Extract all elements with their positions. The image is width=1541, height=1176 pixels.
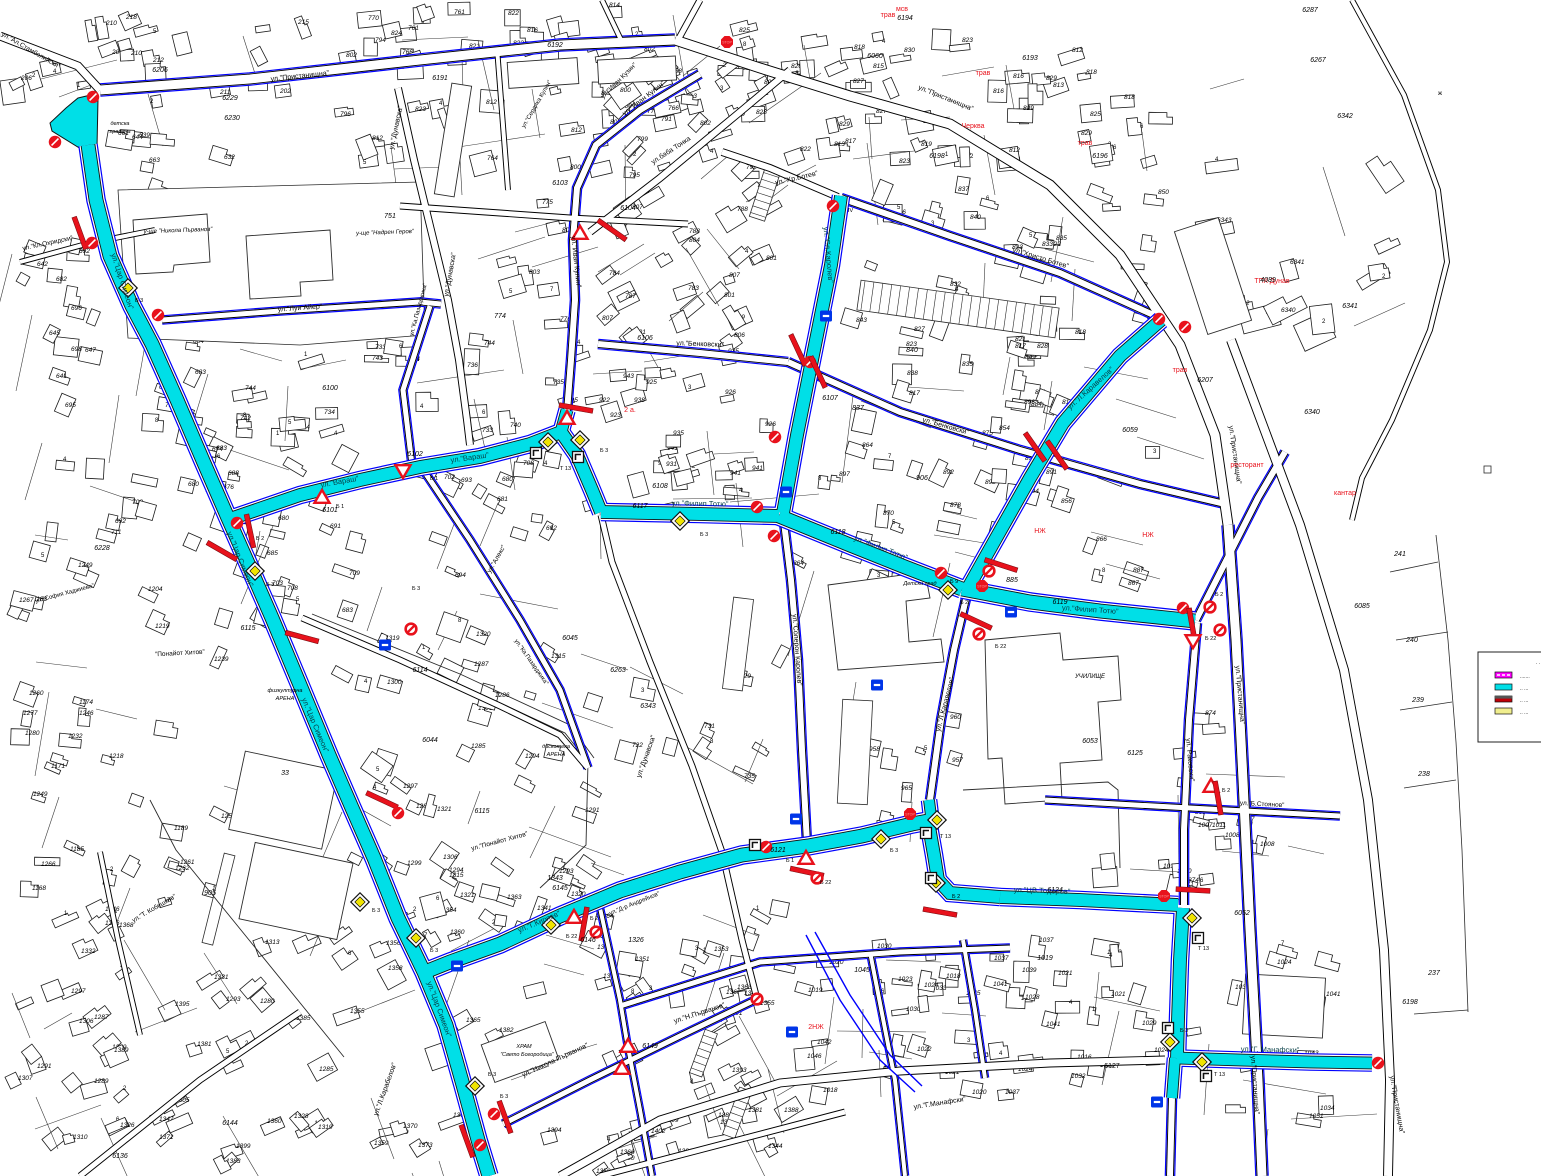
- svg-text:837: 837: [958, 186, 969, 193]
- svg-text:833: 833: [1042, 241, 1053, 248]
- svg-text:825: 825: [739, 27, 750, 34]
- svg-text:6198: 6198: [1402, 999, 1418, 1006]
- svg-text:812: 812: [372, 135, 383, 142]
- svg-text:709: 709: [349, 570, 360, 577]
- svg-text:1042: 1042: [817, 1039, 832, 1046]
- svg-text:.. ...: .. ...: [1520, 686, 1528, 692]
- svg-text:Б 3: Б 3: [890, 848, 898, 854]
- svg-text:215: 215: [297, 19, 309, 26]
- svg-text:935: 935: [673, 430, 684, 437]
- svg-text:647: 647: [85, 347, 96, 354]
- svg-text:мсв: мсв: [896, 6, 908, 13]
- svg-text:1051: 1051: [1309, 1113, 1324, 1120]
- svg-text:Б 22: Б 22: [995, 644, 1006, 650]
- svg-text:1024: 1024: [1277, 959, 1292, 966]
- svg-text:1363: 1363: [507, 894, 522, 901]
- svg-text:ресторант: ресторант: [1230, 462, 1264, 469]
- svg-text:830: 830: [904, 47, 915, 54]
- svg-text:829: 829: [1023, 105, 1034, 112]
- svg-text:816: 816: [527, 27, 538, 34]
- svg-text:813: 813: [834, 141, 845, 148]
- svg-text:743: 743: [372, 355, 383, 362]
- svg-text:1037: 1037: [1005, 1089, 1020, 1096]
- svg-text:6228: 6228: [94, 545, 110, 552]
- svg-text:825: 825: [1090, 111, 1101, 118]
- svg-text:814: 814: [609, 2, 620, 9]
- svg-text:645: 645: [49, 330, 60, 337]
- svg-text:Б 3: Б 3: [412, 586, 420, 592]
- svg-text:774: 774: [494, 313, 506, 320]
- svg-text:6104: 6104: [620, 205, 636, 212]
- svg-text:905: 905: [204, 890, 216, 897]
- svg-text:2 а.: 2 а.: [624, 407, 636, 414]
- svg-text:1315: 1315: [449, 872, 464, 879]
- svg-text:241: 241: [1393, 551, 1406, 558]
- svg-text:6045: 6045: [562, 635, 578, 642]
- svg-text:1360: 1360: [450, 929, 465, 936]
- svg-text:1041: 1041: [993, 981, 1008, 988]
- svg-text:818: 818: [1086, 69, 1097, 76]
- svg-text:691: 691: [330, 523, 341, 530]
- svg-text:1030: 1030: [906, 1006, 921, 1013]
- svg-text:6106: 6106: [637, 335, 653, 342]
- svg-text:6125: 6125: [1127, 750, 1143, 757]
- svg-text:766: 766: [668, 105, 679, 112]
- svg-text:6059: 6059: [1122, 427, 1138, 434]
- svg-text:829: 829: [839, 121, 850, 128]
- svg-text:813: 813: [1053, 82, 1064, 89]
- svg-text:1299: 1299: [407, 860, 422, 867]
- svg-text:202: 202: [279, 88, 291, 95]
- svg-text:6194: 6194: [897, 15, 913, 22]
- svg-text:6191: 6191: [432, 75, 448, 82]
- svg-text:Б 9: Б 9: [950, 579, 958, 585]
- svg-text:1382: 1382: [499, 1027, 514, 1034]
- svg-text:695: 695: [65, 402, 76, 409]
- svg-text:1021: 1021: [1058, 970, 1073, 977]
- svg-text:1045: 1045: [854, 967, 870, 974]
- svg-text:702: 702: [444, 474, 455, 481]
- svg-text:6341: 6341: [1342, 303, 1358, 310]
- svg-text:1370: 1370: [403, 1123, 418, 1130]
- svg-text:806: 806: [734, 332, 745, 339]
- svg-text:1399: 1399: [236, 1143, 251, 1150]
- svg-text:1262: 1262: [175, 865, 190, 872]
- svg-text:1046: 1046: [807, 1053, 822, 1060]
- svg-text:1297: 1297: [71, 988, 86, 995]
- svg-text:1249: 1249: [33, 791, 48, 798]
- svg-text:1395: 1395: [175, 1001, 190, 1008]
- svg-text:Б 2: Б 2: [256, 536, 264, 542]
- svg-text:STOP: STOP: [1159, 895, 1169, 899]
- svg-text:822: 822: [508, 10, 519, 17]
- svg-text:735: 735: [553, 379, 564, 386]
- svg-text:1008: 1008: [1225, 832, 1240, 839]
- svg-text:6121: 6121: [770, 847, 786, 854]
- svg-text:6060: 6060: [867, 53, 883, 60]
- svg-text:663: 663: [149, 157, 160, 164]
- svg-text:6149: 6149: [642, 1043, 658, 1050]
- svg-text:6342: 6342: [1337, 113, 1353, 120]
- svg-text:1021: 1021: [1111, 991, 1126, 998]
- svg-text:Т 13: Т 13: [1214, 1072, 1225, 1078]
- svg-text:644: 644: [132, 134, 143, 141]
- svg-text:6136: 6136: [112, 1153, 128, 1160]
- svg-text:681: 681: [497, 496, 508, 503]
- svg-text:239: 239: [1411, 697, 1424, 704]
- svg-text:Б 3: Б 3: [430, 948, 438, 954]
- svg-text:6192: 6192: [547, 42, 563, 49]
- svg-text:840: 840: [906, 347, 918, 354]
- svg-text:6343: 6343: [640, 703, 656, 710]
- svg-text:1018: 1018: [946, 973, 961, 980]
- svg-text:807: 807: [602, 315, 613, 322]
- svg-text:692: 692: [115, 518, 126, 525]
- svg-text:694: 694: [455, 572, 466, 579]
- svg-text:1388: 1388: [784, 1107, 799, 1114]
- svg-text:6198: 6198: [929, 153, 945, 160]
- svg-text:744: 744: [484, 340, 495, 347]
- svg-text:Б 3: Б 3: [266, 582, 274, 588]
- svg-text:1289: 1289: [94, 1078, 109, 1085]
- svg-text:878: 878: [950, 502, 961, 509]
- svg-text:6085: 6085: [1354, 603, 1370, 610]
- svg-text:804: 804: [689, 237, 700, 244]
- svg-text:818: 818: [1075, 329, 1086, 336]
- svg-text:НЖ: НЖ: [1142, 532, 1154, 539]
- svg-text:926: 926: [725, 389, 736, 396]
- svg-text:823: 823: [962, 37, 973, 44]
- svg-text:6103: 6103: [552, 180, 568, 187]
- svg-text:731: 731: [704, 723, 715, 730]
- svg-text:210: 210: [105, 20, 117, 27]
- svg-text:711: 711: [111, 529, 122, 536]
- svg-text:1353: 1353: [714, 946, 729, 953]
- svg-text:6101: 6101: [322, 507, 338, 514]
- svg-text:824: 824: [391, 30, 402, 37]
- svg-text:6263: 6263: [610, 667, 626, 674]
- svg-text:1321: 1321: [437, 806, 452, 813]
- svg-text:817: 817: [909, 390, 920, 397]
- svg-text:1365: 1365: [466, 1017, 481, 1024]
- svg-text:1019: 1019: [808, 987, 823, 994]
- svg-text:1320: 1320: [476, 631, 491, 638]
- svg-text:828: 828: [1037, 343, 1048, 350]
- svg-text:744: 744: [245, 385, 256, 392]
- svg-text:817: 817: [1015, 343, 1026, 350]
- svg-text:1260: 1260: [29, 690, 44, 697]
- svg-text:6127: 6127: [1104, 1063, 1120, 1070]
- svg-text:1306: 1306: [443, 854, 458, 861]
- svg-text:1041: 1041: [1326, 991, 1341, 998]
- svg-text:Черква: Черква: [961, 123, 984, 130]
- svg-text:943: 943: [623, 373, 634, 380]
- svg-text:770: 770: [368, 15, 379, 22]
- svg-text:6196: 6196: [1092, 153, 1108, 160]
- svg-text:.......: .......: [1520, 674, 1530, 680]
- svg-text:Б 3: Б 3: [372, 908, 380, 914]
- svg-text:градина: градина: [109, 129, 130, 135]
- svg-text:1267: 1267: [19, 597, 34, 604]
- svg-text:1381: 1381: [748, 1107, 763, 1114]
- svg-text:850: 850: [1158, 189, 1169, 196]
- svg-text:6118: 6118: [830, 529, 845, 536]
- svg-text:Б 22: Б 22: [820, 880, 831, 886]
- svg-text:823: 823: [415, 106, 426, 113]
- svg-text:938: 938: [634, 397, 645, 404]
- svg-text:1286: 1286: [495, 692, 510, 699]
- svg-text:1359: 1359: [374, 1140, 389, 1147]
- svg-text:931: 931: [666, 461, 677, 468]
- svg-text:802: 802: [346, 52, 357, 59]
- svg-text:1319: 1319: [318, 1124, 333, 1131]
- svg-text:816: 816: [1013, 73, 1024, 80]
- svg-text:1321: 1321: [460, 892, 475, 899]
- svg-text:1011: 1011: [1212, 822, 1226, 829]
- svg-text:1394: 1394: [547, 1127, 562, 1134]
- svg-text:941: 941: [752, 465, 763, 472]
- svg-text:1291: 1291: [37, 1063, 52, 1070]
- svg-text:812: 812: [1009, 147, 1020, 154]
- svg-text:891: 891: [1046, 469, 1057, 476]
- svg-text:1313: 1313: [265, 939, 280, 946]
- svg-text:STOP: STOP: [722, 41, 732, 45]
- svg-text:761: 761: [454, 9, 465, 16]
- svg-text:817: 817: [845, 138, 856, 145]
- svg-text:6207: 6207: [1197, 377, 1214, 384]
- svg-text:815: 815: [873, 63, 884, 70]
- svg-text:708: 708: [523, 460, 534, 467]
- svg-text:1219: 1219: [155, 623, 170, 630]
- svg-text:6044: 6044: [422, 737, 438, 744]
- svg-text:864: 864: [862, 442, 873, 449]
- svg-text:736: 736: [467, 362, 478, 369]
- svg-text:6230: 6230: [224, 115, 240, 122]
- svg-text:885: 885: [1006, 577, 1018, 584]
- svg-text:1315: 1315: [551, 653, 566, 660]
- svg-text:6267: 6267: [1310, 57, 1327, 64]
- svg-text:210: 210: [130, 50, 142, 57]
- svg-text:1007: 1007: [1198, 822, 1213, 829]
- svg-text:6206: 6206: [152, 67, 168, 74]
- svg-text:1020: 1020: [972, 1089, 987, 1096]
- svg-text:801: 801: [724, 292, 735, 299]
- svg-text:дискотека: дискотека: [542, 744, 570, 750]
- svg-text:6341: 6341: [1290, 259, 1305, 266]
- svg-text:Б 2: Б 2: [960, 600, 968, 606]
- svg-text:6340: 6340: [1281, 307, 1296, 314]
- svg-text:2НЖ: 2НЖ: [808, 1024, 824, 1031]
- svg-text:6145: 6145: [552, 885, 568, 892]
- svg-text:870: 870: [883, 510, 894, 517]
- svg-text:733: 733: [482, 427, 493, 434]
- svg-text:Б 2: Б 2: [1222, 788, 1230, 794]
- svg-text:840: 840: [970, 214, 981, 221]
- svg-text:Б 2: Б 2: [1215, 592, 1223, 598]
- svg-text:1024: 1024: [924, 982, 939, 989]
- svg-text:632: 632: [224, 154, 235, 161]
- svg-text:237: 237: [1427, 970, 1441, 977]
- svg-text:829: 829: [1081, 130, 1092, 137]
- svg-text:6124: 6124: [1047, 887, 1063, 894]
- svg-text:1355: 1355: [350, 1008, 365, 1015]
- svg-text:1285: 1285: [319, 1066, 334, 1073]
- svg-text:4089: 4089: [1260, 277, 1276, 284]
- svg-text:ул.”Филип Тотю”: ул.”Филип Тотю”: [672, 499, 729, 509]
- svg-text:1287: 1287: [94, 1014, 109, 1021]
- svg-text:965: 965: [901, 785, 912, 792]
- svg-text:1023: 1023: [898, 976, 913, 983]
- svg-text:ж: ж: [1438, 91, 1442, 97]
- svg-text:6119: 6119: [1052, 599, 1067, 606]
- svg-text:Б 2: Б 2: [590, 916, 598, 922]
- svg-text:трав: трав: [1078, 140, 1093, 147]
- svg-text:1174: 1174: [79, 699, 93, 706]
- svg-text:794: 794: [375, 37, 386, 44]
- svg-text:ул.”Г. Манафски”: ул.”Г. Манафски”: [1241, 1044, 1300, 1054]
- svg-text:1285: 1285: [471, 743, 486, 750]
- svg-text:физкултурна: физкултурна: [268, 688, 303, 694]
- svg-text:807: 807: [729, 272, 740, 279]
- svg-text:1185: 1185: [70, 846, 84, 853]
- svg-text:1022: 1022: [917, 1046, 932, 1053]
- svg-text:АРЕНА: АРЕНА: [275, 696, 295, 702]
- svg-text:1358: 1358: [388, 965, 403, 972]
- svg-text:856: 856: [1061, 498, 1072, 505]
- svg-text:692: 692: [546, 525, 557, 532]
- svg-text:Б 1: Б 1: [430, 476, 438, 482]
- svg-text:Т 13: Т 13: [1198, 946, 1209, 952]
- svg-text:6115: 6115: [474, 808, 489, 815]
- svg-text:960: 960: [950, 714, 961, 721]
- svg-text:866: 866: [1096, 536, 1107, 543]
- svg-text:642: 642: [37, 261, 48, 268]
- svg-text:1287: 1287: [474, 661, 489, 668]
- svg-text:784: 784: [609, 270, 620, 277]
- svg-text:трав: трав: [881, 12, 896, 19]
- svg-text:детска: детска: [111, 121, 130, 127]
- svg-text:696: 696: [71, 305, 82, 312]
- svg-text:788: 788: [689, 228, 700, 235]
- svg-text:788: 788: [737, 206, 748, 213]
- svg-text:734: 734: [324, 409, 335, 416]
- svg-text:801: 801: [766, 255, 777, 262]
- svg-text:1246: 1246: [79, 710, 94, 717]
- svg-text:1310: 1310: [73, 1134, 88, 1141]
- svg-text:. .: . .: [1536, 660, 1540, 666]
- svg-text:Б 1: Б 1: [786, 858, 794, 864]
- svg-text:864: 864: [793, 560, 804, 567]
- svg-text:1041: 1041: [1046, 1021, 1061, 1028]
- svg-text:827: 827: [914, 326, 925, 333]
- svg-text:1039: 1039: [1022, 967, 1037, 974]
- svg-text:НЖ: НЖ: [1034, 528, 1046, 535]
- svg-text:818: 818: [1124, 94, 1135, 101]
- svg-text:685: 685: [267, 550, 278, 557]
- svg-text:1328: 1328: [294, 1113, 309, 1120]
- svg-text:906: 906: [916, 475, 928, 482]
- svg-text:1204: 1204: [148, 586, 163, 593]
- svg-text:829: 829: [1046, 75, 1057, 82]
- svg-text:6117: 6117: [632, 503, 648, 510]
- svg-text:кантар: кантар: [1334, 490, 1356, 497]
- svg-text:Б 3: Б 3: [700, 532, 708, 538]
- svg-text:680: 680: [502, 476, 513, 483]
- svg-text:33: 33: [281, 770, 289, 777]
- svg-text:1239: 1239: [214, 656, 229, 663]
- svg-text:1028: 1028: [1025, 994, 1040, 1001]
- svg-text:6107: 6107: [822, 395, 839, 402]
- svg-text:791: 791: [661, 116, 672, 123]
- svg-text:IV: IV: [848, 208, 854, 214]
- svg-text:1326: 1326: [628, 937, 644, 944]
- svg-text:1294: 1294: [525, 753, 540, 760]
- svg-text:837: 837: [852, 405, 865, 412]
- svg-text:1307: 1307: [18, 1075, 33, 1082]
- svg-text:874: 874: [1205, 710, 1216, 717]
- svg-text:796: 796: [340, 111, 351, 118]
- svg-text:6100: 6100: [322, 385, 338, 392]
- svg-text:STOP: STOP: [977, 585, 987, 589]
- svg-text:683: 683: [195, 369, 206, 376]
- svg-text:822: 822: [800, 146, 811, 153]
- svg-text:1326: 1326: [120, 1122, 135, 1129]
- svg-text:6102: 6102: [407, 451, 423, 458]
- svg-text:STOP: STOP: [905, 813, 915, 817]
- svg-text:1297: 1297: [403, 783, 418, 790]
- svg-text:6287: 6287: [1302, 7, 1319, 14]
- svg-text:802: 802: [700, 120, 711, 127]
- svg-text:751: 751: [384, 213, 396, 220]
- svg-text:1037: 1037: [994, 955, 1009, 962]
- svg-text:6053: 6053: [1082, 738, 1098, 745]
- svg-text:.. ...: .. ...: [1520, 710, 1528, 716]
- svg-text:1037: 1037: [1039, 937, 1054, 944]
- svg-text:Б 3: Б 3: [500, 1094, 508, 1100]
- svg-text:1351: 1351: [635, 956, 650, 963]
- svg-text:799: 799: [637, 136, 648, 143]
- svg-text:698: 698: [71, 346, 82, 353]
- svg-text:795: 795: [629, 172, 640, 179]
- svg-text:742: 742: [240, 415, 251, 422]
- svg-text:1389: 1389: [114, 1047, 129, 1054]
- svg-text:923: 923: [610, 412, 621, 419]
- svg-text:1218: 1218: [109, 753, 124, 760]
- svg-text:1402: 1402: [651, 1128, 666, 1135]
- svg-text:Б 22: Б 22: [1205, 636, 1216, 642]
- svg-text:1371: 1371: [159, 1134, 174, 1141]
- svg-text:6229: 6229: [222, 95, 238, 102]
- svg-text:828: 828: [756, 109, 767, 116]
- svg-text:843: 843: [856, 317, 867, 324]
- svg-text:трав: трав: [1173, 367, 1188, 374]
- svg-text:740: 740: [510, 422, 521, 429]
- svg-text:800: 800: [620, 87, 631, 94]
- svg-text:867: 867: [1128, 580, 1139, 587]
- svg-text:838: 838: [907, 370, 918, 377]
- svg-text:1280: 1280: [260, 998, 275, 1005]
- svg-text:1332: 1332: [81, 948, 96, 955]
- svg-text:АРЕНА: АРЕНА: [546, 752, 566, 758]
- svg-text:680: 680: [278, 515, 289, 522]
- svg-text:803: 803: [529, 269, 540, 276]
- svg-text:693: 693: [461, 477, 472, 484]
- svg-text:”Свето Богородица”: ”Свето Богородица”: [500, 1052, 554, 1058]
- svg-text:818: 818: [854, 44, 865, 51]
- svg-text:1360: 1360: [267, 1118, 282, 1125]
- svg-text:1344: 1344: [768, 1143, 783, 1150]
- svg-text:Б 22: Б 22: [566, 934, 577, 940]
